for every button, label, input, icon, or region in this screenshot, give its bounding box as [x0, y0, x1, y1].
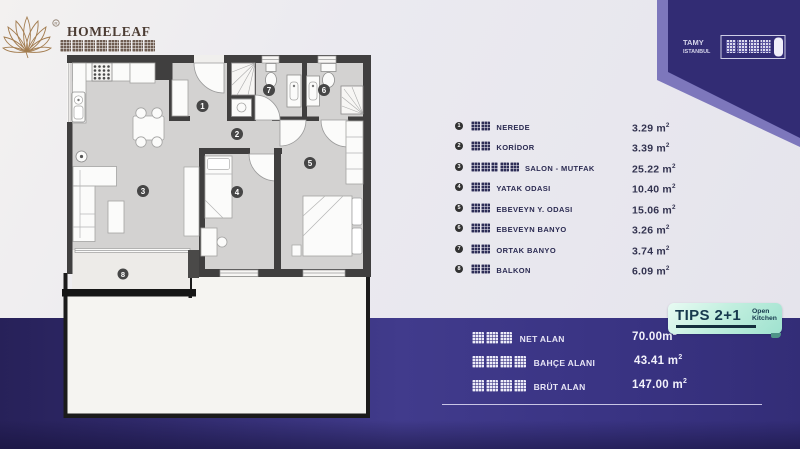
- svg-text:5: 5: [308, 159, 313, 168]
- svg-text:3: 3: [141, 187, 146, 196]
- svg-text:1: 1: [200, 102, 205, 111]
- svg-text:HOMELEAF: HOMELEAF: [67, 24, 151, 39]
- svg-text:2: 2: [235, 130, 240, 139]
- svg-text:6: 6: [322, 86, 327, 95]
- svg-text:ISTANBUL: ISTANBUL: [683, 49, 711, 55]
- svg-text:4: 4: [235, 188, 240, 197]
- svg-text:7: 7: [267, 86, 272, 95]
- svg-text:8: 8: [121, 270, 125, 279]
- svg-text:TAMY: TAMY: [683, 38, 704, 47]
